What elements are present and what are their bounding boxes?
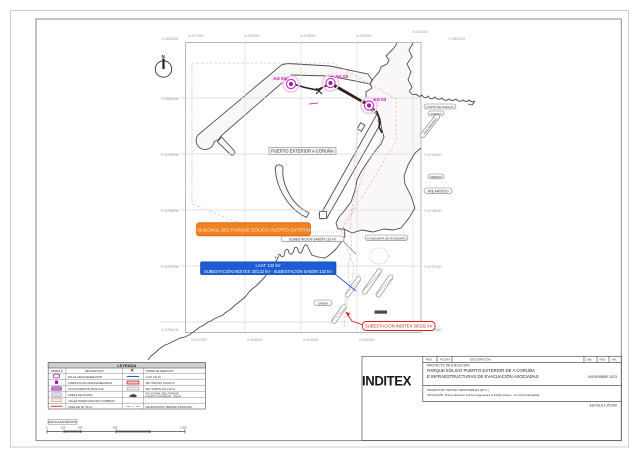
- svg-text:Y=4799100: Y=4799100: [161, 153, 179, 157]
- svg-text:ESCALA 1:25.000: ESCALA 1:25.000: [590, 403, 617, 407]
- svg-text:AG 03: AG 03: [373, 97, 387, 102]
- svg-text:250: 250: [78, 426, 83, 430]
- svg-text:INDITEX: INDITEX: [362, 373, 411, 388]
- svg-text:PROYECTO DE EJECUCIÓN: PROYECTO DE EJECUCIÓN: [427, 363, 470, 368]
- svg-text:Y=4798100: Y=4798100: [424, 209, 442, 213]
- svg-text:PORTO DE SUEVOS: PORTO DE SUEVOS: [427, 105, 454, 109]
- svg-text:PERCEBEIRAS: PERCEBEIRAS: [423, 117, 438, 135]
- svg-text:PROMOTOR: INDITEX RENOVABLE: PROMOTOR: INDITEX RENOVABLES (ETC.): [427, 388, 489, 392]
- svg-text:X=517000: X=517000: [188, 34, 204, 38]
- svg-text:X=519000: X=519000: [300, 34, 316, 38]
- svg-text:VAL.: VAL.: [612, 358, 618, 362]
- svg-text:PUERTO EXTERIOR - SNUP: PUERTO EXTERIOR - SNUP: [146, 395, 182, 399]
- svg-text:REV.: REV.: [600, 358, 607, 362]
- svg-text:LINEA DE MT 30 kV: LINEA DE MT 30 kV: [68, 405, 93, 409]
- svg-text:E INFRAESTRUCTURAS DE EVACUACI: E INFRAESTRUCTURAS DE EVACUACIÓN ASOCIAD…: [427, 374, 539, 379]
- svg-text:X=521000: X=521000: [412, 30, 428, 34]
- svg-text:N: N: [162, 54, 165, 59]
- svg-text:Y=4800100: Y=4800100: [161, 97, 179, 101]
- svg-text:SUBESTACIÓN INDITEX 30/132 kV: SUBESTACIÓN INDITEX 30/132 kV: [365, 324, 433, 329]
- svg-text:DESCRIPCION: DESCRIPCION: [85, 369, 104, 373]
- svg-text:XUNQUEIRA DE RODEORIO: XUNQUEIRA DE RODEORIO: [367, 236, 408, 240]
- svg-text:DESCRIPCIÓN: DESCRIPCIÓN: [470, 357, 491, 362]
- svg-text:X=520000: X=520000: [359, 338, 375, 342]
- svg-text:X=518000: X=518000: [247, 338, 263, 342]
- svg-text:POLIGONAL DEL PARQUE EOLICO PU: POLIGONAL DEL PARQUE EOLICO PUERTO EXTER…: [193, 228, 314, 233]
- svg-text:Y=4799100: Y=4799100: [424, 153, 442, 157]
- svg-text:Y=4796100: Y=4796100: [161, 328, 179, 332]
- svg-text:Y=4797100: Y=4797100: [424, 265, 442, 269]
- svg-text:1.000: 1.000: [180, 426, 187, 430]
- svg-text:X=517000: X=517000: [191, 338, 207, 342]
- svg-text:Y=4801100: Y=4801100: [161, 37, 178, 41]
- svg-text:PLATAFORMA DE MONTAJE: PLATAFORMA DE MONTAJE: [68, 387, 104, 391]
- svg-text:ARMADA: ARMADA: [430, 175, 442, 179]
- svg-text:AG 02: AG 02: [335, 74, 349, 79]
- svg-text:SUEVOS: SUEVOS: [430, 112, 442, 116]
- svg-text:DIB.: DIB.: [587, 358, 593, 362]
- svg-text:SIMBOLO: SIMBOLO: [51, 369, 63, 373]
- svg-text:AREAS DE ACOPIO: AREAS DE ACOPIO: [68, 393, 93, 397]
- svg-text:AG 01: AG 01: [273, 76, 287, 81]
- svg-text:PALAS AEROGENERADOR: PALAS AEROGENERADOR: [68, 375, 102, 379]
- svg-text:X=520000: X=520000: [356, 34, 372, 38]
- svg-text:FECHA: FECHA: [440, 358, 450, 362]
- svg-text:TRE ARTEIXO: TRE ARTEIXO: [427, 190, 449, 194]
- svg-text:SABÓN: SABÓN: [318, 301, 329, 306]
- svg-text:NOVIEMBRE 2023: NOVIEMBRE 2023: [588, 375, 617, 379]
- svg-text:500: 500: [113, 426, 118, 430]
- svg-text:LAAT 132 kV: LAAT 132 kV: [146, 375, 162, 379]
- svg-text:SUBESTACIÓN SABÓN 132 kV: SUBESTACIÓN SABÓN 132 kV: [289, 236, 337, 241]
- svg-text:125: 125: [61, 426, 66, 430]
- svg-text:PARQUE EÓLICO PUERTO EXTERIOR: PARQUE EÓLICO PUERTO EXTERIOR DE A CORUÑ…: [427, 368, 535, 373]
- svg-text:LAAT 132 kV: LAAT 132 kV: [256, 263, 281, 268]
- svg-text:X=519000: X=519000: [303, 338, 319, 342]
- svg-text:X=518000: X=518000: [244, 34, 260, 38]
- svg-text:TORRE DE MEDICION: TORRE DE MEDICION: [146, 369, 174, 373]
- svg-text:LEYENDA: LEYENDA: [117, 363, 136, 368]
- svg-text:SET INDITEX 132/30 kV: SET INDITEX 132/30 kV: [146, 381, 176, 385]
- svg-text:SUBESTACIÓN INDITEX 30/132 kV: SUBESTACIÓN INDITEX 30/132 kV - SUBESTAC…: [204, 269, 332, 274]
- svg-text:PUERTO EXTERIOR A CORUÑA: PUERTO EXTERIOR A CORUÑA: [271, 149, 334, 154]
- svg-text:REV.: REV.: [426, 358, 433, 362]
- svg-text:ESCALA EN METROS: ESCALA EN METROS: [48, 420, 76, 424]
- svg-text:Y=4801100: Y=4801100: [448, 37, 465, 41]
- svg-text:SITUACIÓN: Puerto Exterior: SITUACIÓN: Puerto Exterior Punta Langost…: [427, 392, 539, 397]
- svg-text:0: 0: [46, 426, 48, 430]
- svg-text:Y=4798100: Y=4798100: [161, 209, 179, 213]
- svg-text:Y=4797100: Y=4797100: [161, 265, 179, 269]
- svg-text:VIALES INTERCONEXION TURBINAS: VIALES INTERCONEXION TURBINAS: [68, 399, 115, 403]
